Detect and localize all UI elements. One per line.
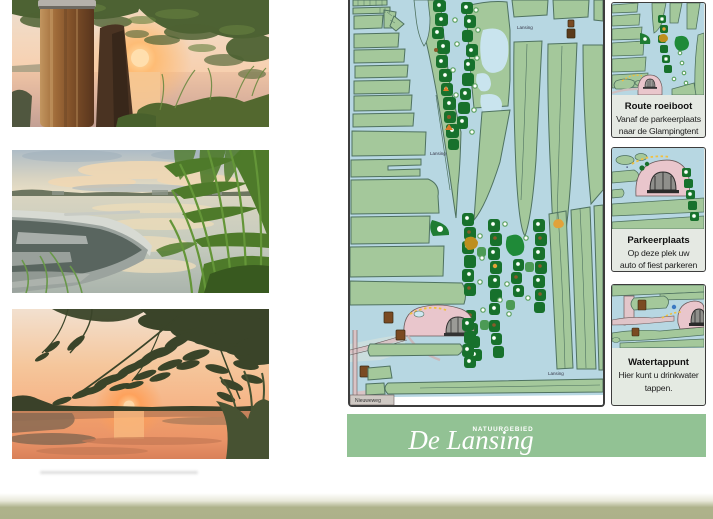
svg-text:Lansing: Lansing [548, 371, 564, 376]
svg-text:Nieuweweg: Nieuweweg [355, 398, 381, 404]
svg-text:Lansing: Lansing [517, 25, 533, 30]
svg-text:Lansing: Lansing [430, 151, 446, 156]
svg-text:●: ● [626, 165, 628, 169]
